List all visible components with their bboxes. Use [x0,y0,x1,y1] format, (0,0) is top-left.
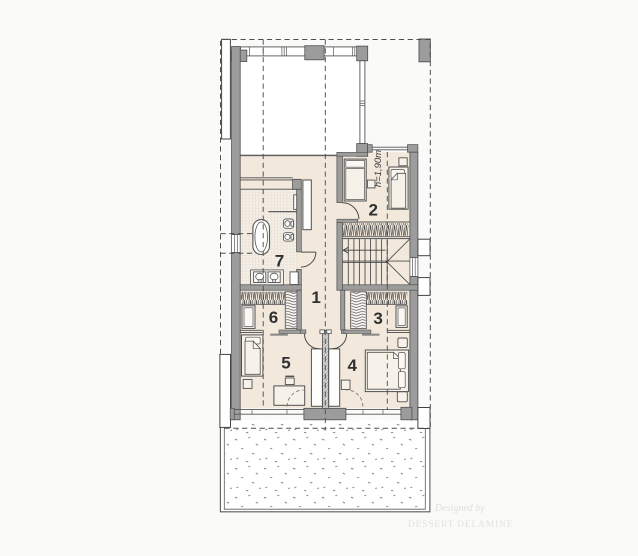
svg-text:DESSERT DELAMINE: DESSERT DELAMINE [408,520,513,530]
svg-text:7: 7 [275,252,284,271]
svg-text:1: 1 [311,288,320,307]
svg-text:6: 6 [269,308,278,327]
svg-text:3: 3 [373,309,382,328]
svg-text:h=1,90m: h=1,90m [373,150,384,187]
svg-text:4: 4 [348,356,358,375]
svg-text:5: 5 [281,353,290,372]
svg-text:Designed by: Designed by [434,503,485,514]
svg-text:2: 2 [369,200,378,219]
